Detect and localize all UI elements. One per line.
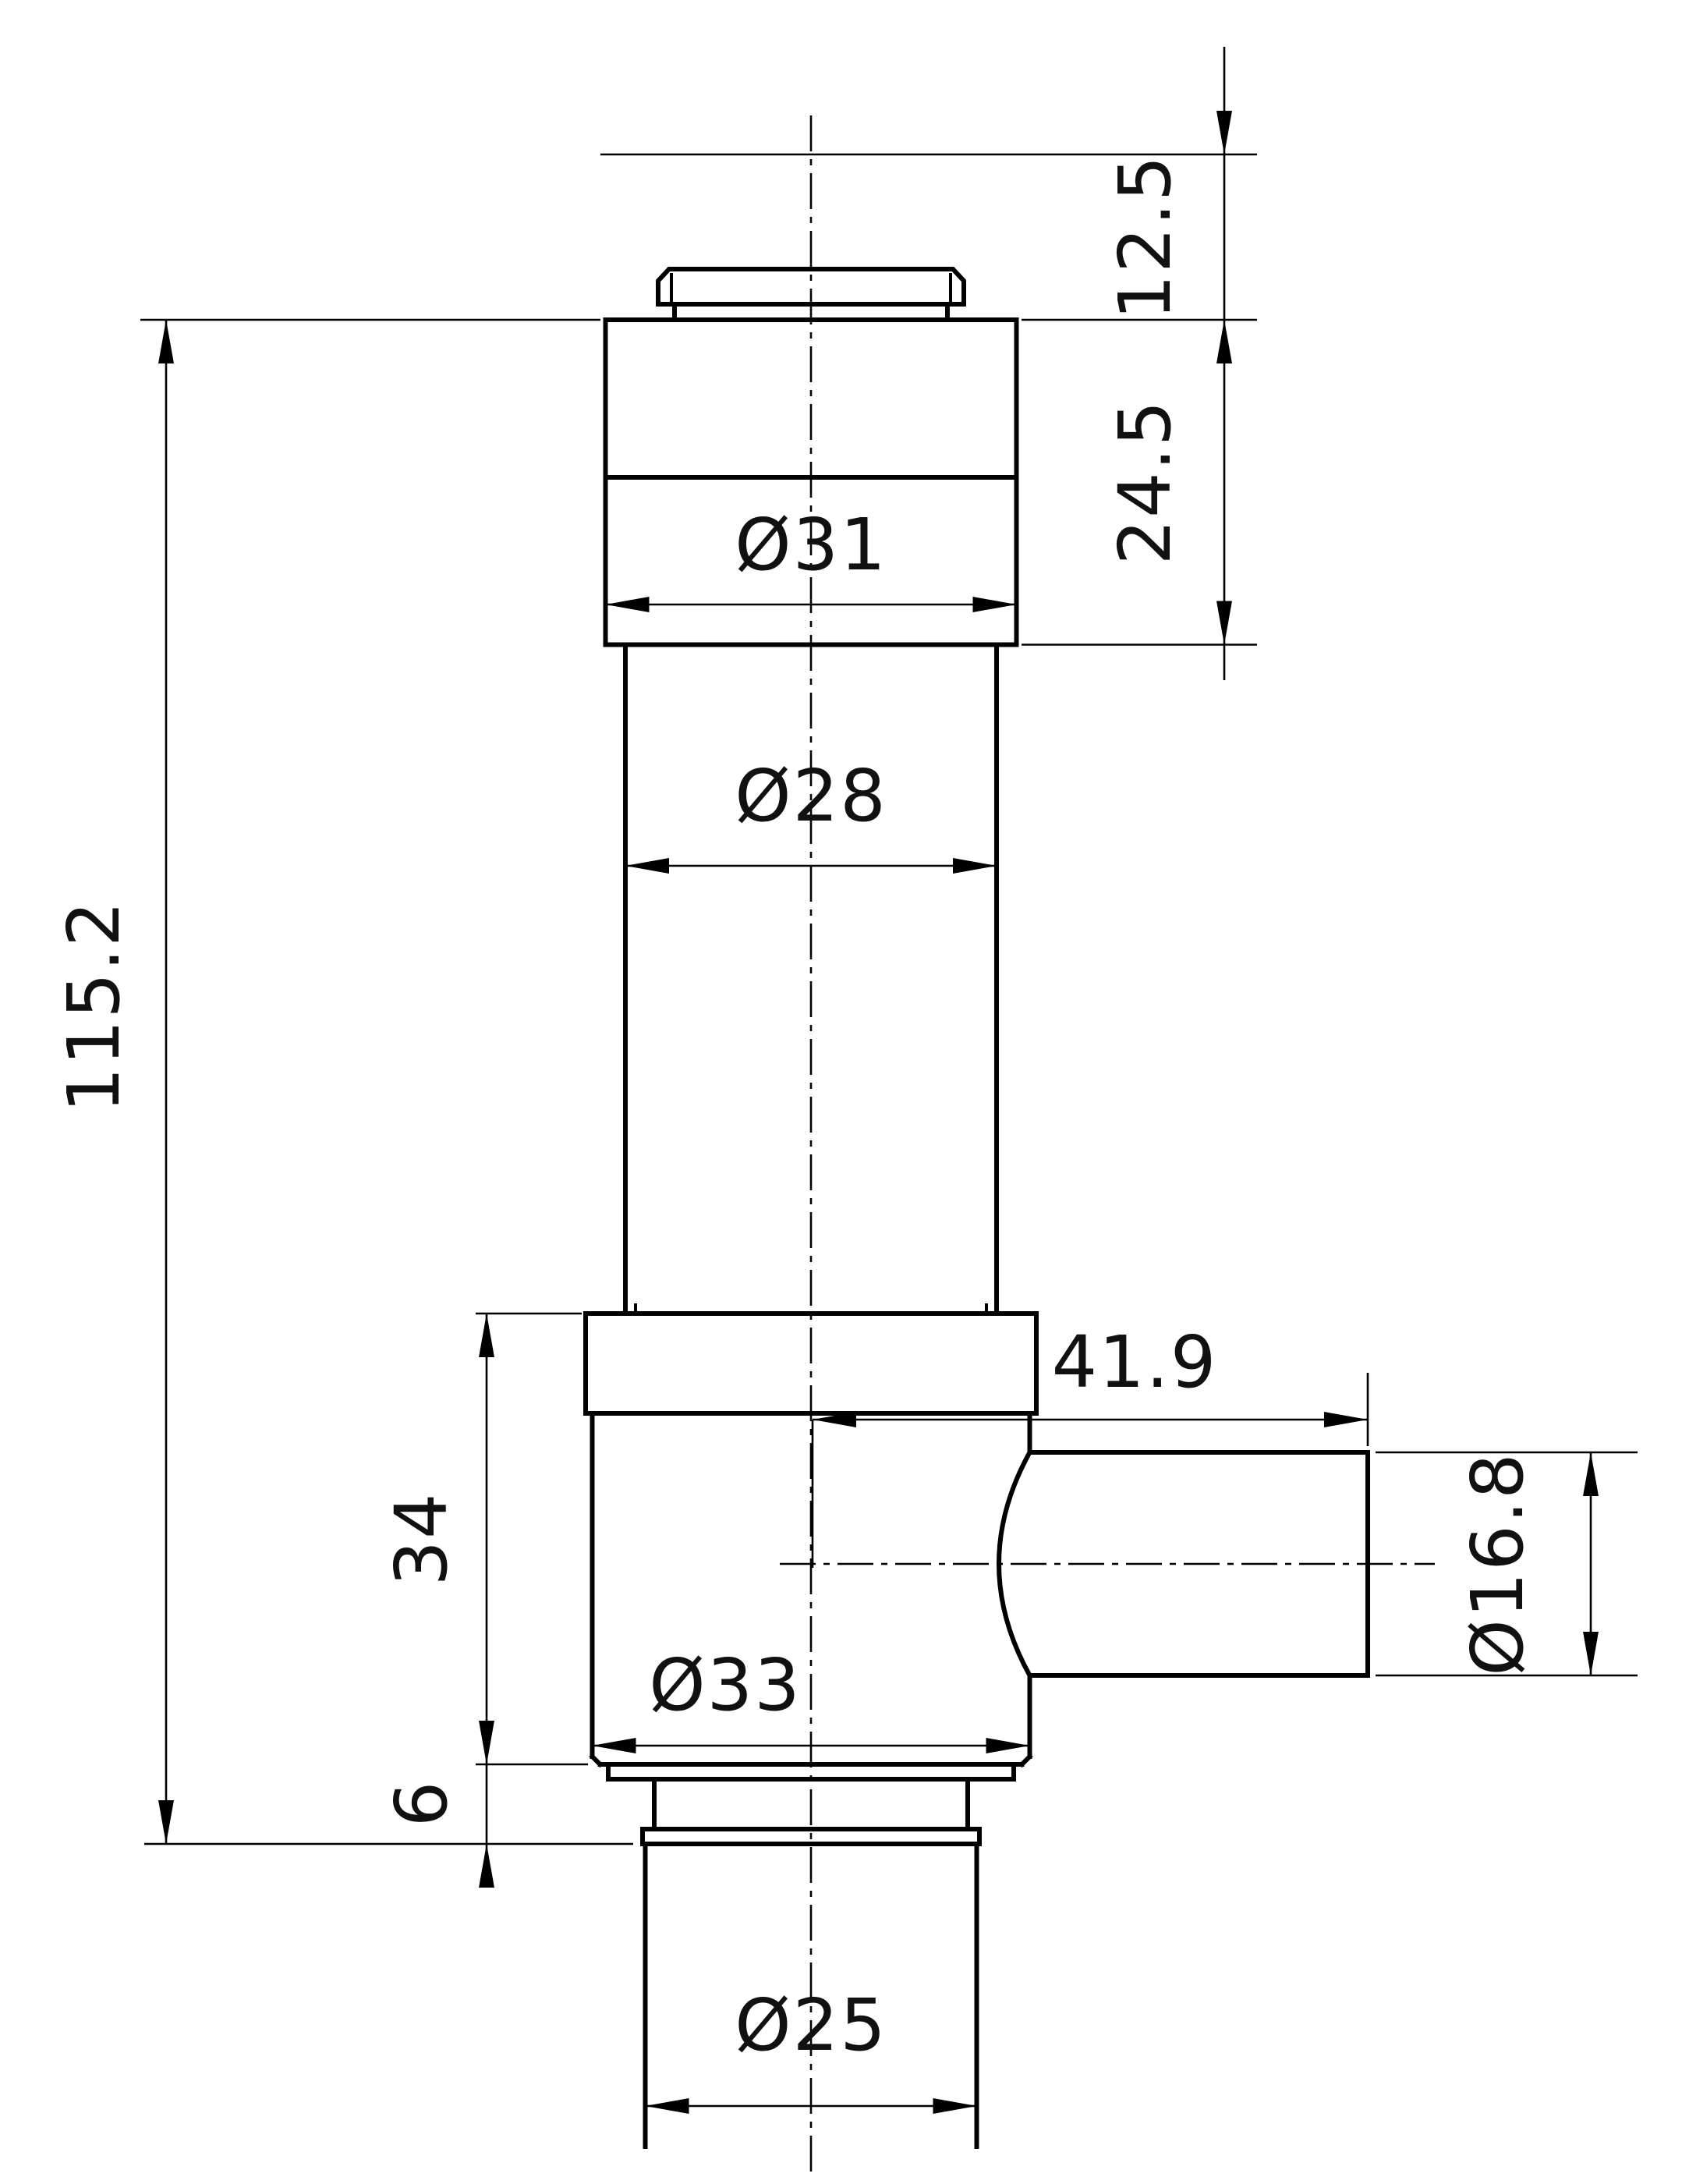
arrow-body-bottom-down <box>479 1721 494 1764</box>
dim-head-height-label: 24.5 <box>1103 399 1187 565</box>
drawing-canvas: 12.5 24.5 115.2 34 6 Ø16.8 Ø31 Ø28 Ø33 Ø… <box>0 0 1682 2184</box>
arrow-body-top-up <box>479 1314 494 1357</box>
arrow-body-dia-left <box>593 1738 636 1753</box>
arrow-port-dia-down <box>1583 1632 1599 1675</box>
technical-drawing: 12.5 24.5 115.2 34 6 Ø16.8 Ø31 Ø28 Ø33 Ø… <box>0 0 1682 2184</box>
dim-top-offset-label: 12.5 <box>1103 154 1187 321</box>
arrow-base-dia-right <box>933 2098 977 2114</box>
arrow-head-dia-right <box>973 597 1017 612</box>
dim-flange-height-label: 6 <box>380 1780 463 1828</box>
arrow-base-dia-left <box>646 2098 689 2114</box>
dim-body-diameter-label: Ø33 <box>649 1643 801 1727</box>
arrow-top-offset-down <box>1216 111 1232 154</box>
dim-body-height-label: 34 <box>380 1491 463 1586</box>
arrow-stem-dia-right <box>953 858 997 874</box>
arrow-head-bottom-down <box>1216 601 1232 645</box>
dim-overall-height-label: 115.2 <box>52 899 136 1112</box>
dim-head-diameter-label: Ø31 <box>735 503 887 587</box>
arrow-flange-bottom-up <box>479 1844 494 1888</box>
arrow-port-length-right <box>1324 1412 1368 1427</box>
arrow-overall-top-up <box>158 320 174 363</box>
dim-port-length-label: 41.9 <box>1052 1321 1218 1404</box>
dim-port-diameter-label: Ø16.8 <box>1456 1452 1539 1675</box>
arrow-body-dia-right <box>986 1738 1030 1753</box>
dim-base-diameter-label: Ø25 <box>735 1984 887 2067</box>
dim-stem-diameter-label: Ø28 <box>735 754 887 838</box>
arrow-stem-dia-left <box>625 858 669 874</box>
arrow-head-top-up <box>1216 320 1232 363</box>
arrow-head-dia-left <box>606 597 650 612</box>
arrow-port-dia-up <box>1583 1452 1599 1496</box>
arrow-overall-bottom-down <box>158 1800 174 1844</box>
